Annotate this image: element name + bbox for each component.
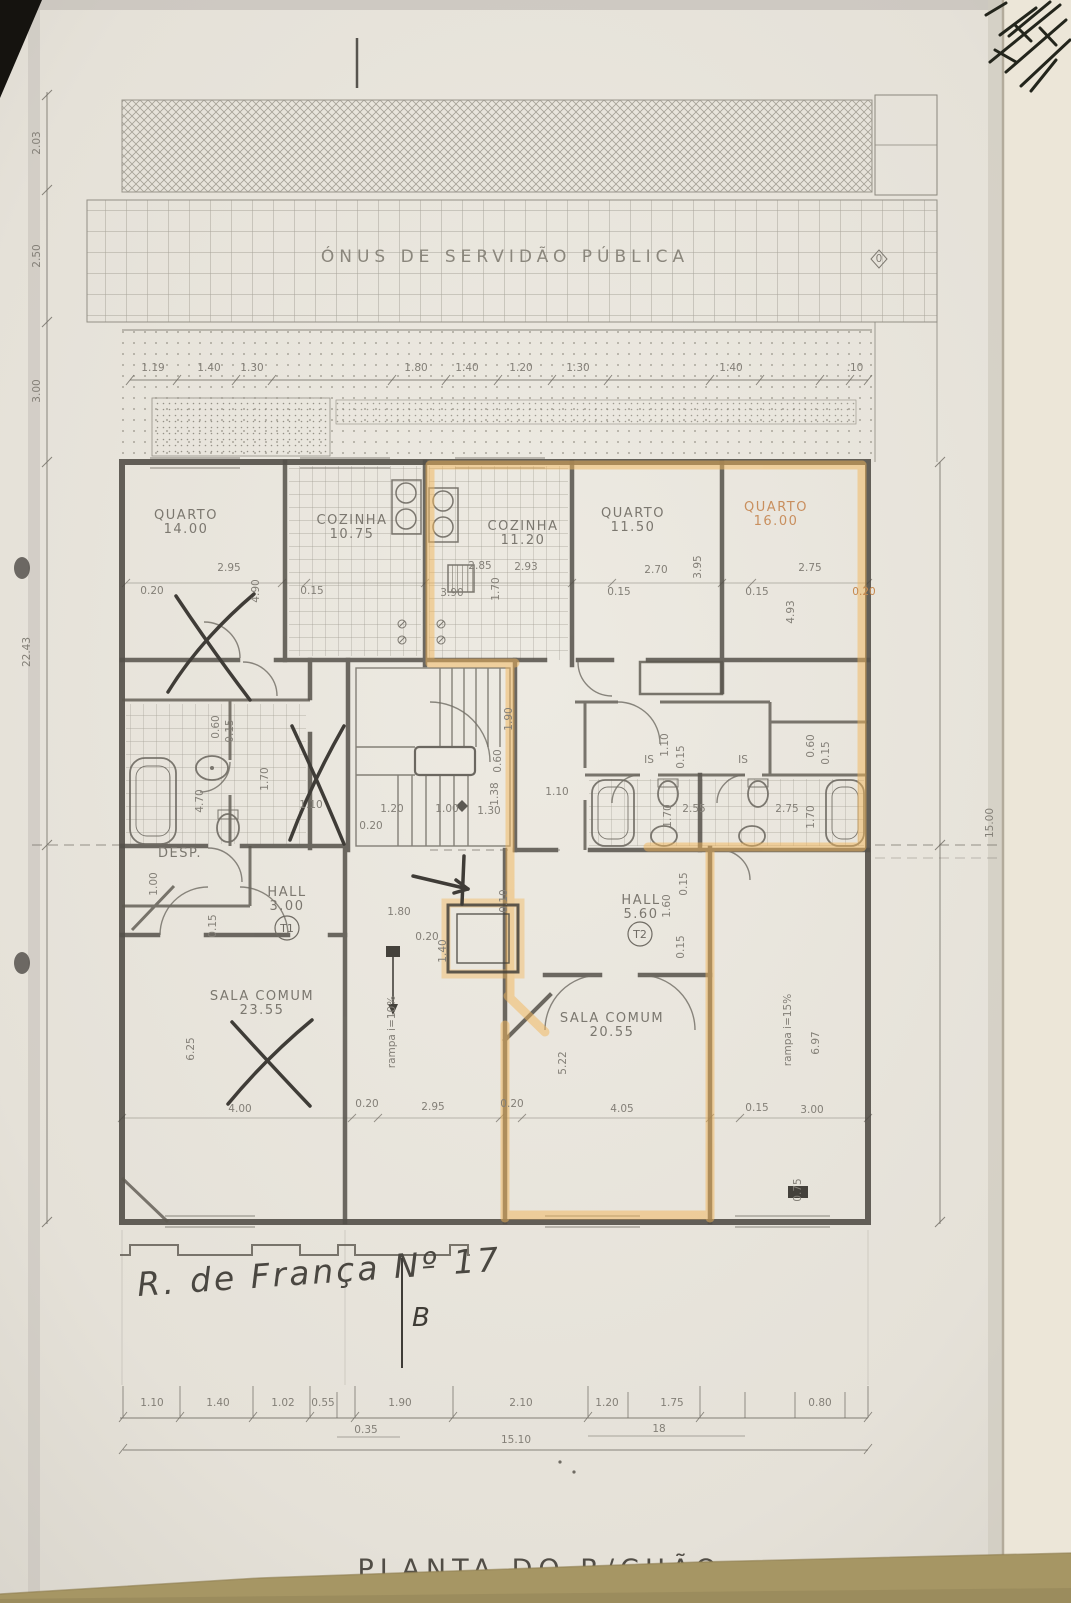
adjacent-sheet bbox=[1003, 0, 1071, 1603]
dimension-label: 1.40 bbox=[197, 362, 220, 374]
dimension-label: 2.55 bbox=[682, 803, 705, 815]
dimension-label: 0.55 bbox=[311, 1397, 334, 1409]
dimension-label: 1.40 bbox=[437, 939, 449, 962]
section-letter: B bbox=[412, 1303, 430, 1333]
dimension-label: 4.93 bbox=[785, 600, 797, 623]
dimension-label: 0.60 bbox=[805, 734, 817, 757]
room-area: 5.60 bbox=[624, 907, 659, 922]
dimension-label: 1.40 bbox=[455, 362, 478, 374]
dimension-label: 1.19 bbox=[141, 362, 164, 374]
dimension-label: 0.15 bbox=[745, 1102, 768, 1114]
dimension-label: 0.15 bbox=[675, 745, 687, 768]
dimension-label: 2.75 bbox=[798, 562, 821, 574]
room-label: QUARTO bbox=[601, 506, 665, 521]
dimension-label: 0 bbox=[876, 253, 883, 265]
dimension-label: 15.00 bbox=[984, 808, 996, 838]
dimension-label: 0.15 bbox=[300, 585, 323, 597]
unit-t1-label: T1 bbox=[279, 922, 294, 935]
dimension-label: 0.20 bbox=[852, 586, 875, 598]
dimension-label: 1.40 bbox=[719, 362, 742, 374]
dimension-label: 1.10 bbox=[659, 733, 671, 756]
dimension-label: 0.80 bbox=[808, 1397, 831, 1409]
dimension-label: 3.90 bbox=[440, 587, 463, 599]
room-label: COZINHA bbox=[317, 513, 388, 528]
dimension-label: 3.95 bbox=[692, 555, 704, 578]
dimension-label: 0.15 bbox=[678, 872, 690, 895]
dimension-label: 1.30 bbox=[240, 362, 263, 374]
dimension-label: 1.75 bbox=[660, 1397, 683, 1409]
dimension-label: 1.70 bbox=[259, 767, 271, 790]
room-label: QUARTO bbox=[154, 508, 218, 523]
dimension-label: 1.20 bbox=[380, 803, 403, 815]
dimension-label: 15.10 bbox=[501, 1434, 531, 1446]
room-label: SALA COMUM bbox=[560, 1011, 664, 1026]
dimension-label: 1.80 bbox=[404, 362, 427, 374]
servitude-strip-label: ÓNUS DE SERVIDÃO PÚBLICA bbox=[321, 245, 689, 267]
dimension-label: 1.00 bbox=[435, 803, 458, 815]
dimension-label: 2.03 bbox=[31, 131, 43, 154]
dimension-label: 5.22 bbox=[557, 1051, 569, 1074]
dimension-label: 0.20 bbox=[500, 1098, 523, 1110]
dimension-label: 1.10 bbox=[140, 1397, 163, 1409]
dimension-label: 1.38 bbox=[489, 782, 501, 805]
photographed-blueprint: ÓNUS DE SERVIDÃO PÚBLICA T1 T2 R. de Fra… bbox=[0, 0, 1071, 1603]
unit-t2-label: T2 bbox=[632, 928, 647, 941]
room-label: IS bbox=[738, 754, 748, 766]
dimension-label: 0.60 bbox=[210, 715, 222, 738]
room-area: 14.00 bbox=[164, 522, 209, 537]
dimension-label: 1.70 bbox=[490, 577, 502, 600]
dimension-label: 0.15 bbox=[607, 586, 630, 598]
dimension-label: 1.80 bbox=[387, 906, 410, 918]
dimension-label: 0.20 bbox=[415, 931, 438, 943]
dimension-label: 1.10 bbox=[545, 786, 568, 798]
dimension-label: 2.85 bbox=[468, 560, 491, 572]
hole-punch-mark bbox=[14, 557, 30, 579]
room-area: 20.55 bbox=[590, 1025, 635, 1040]
dimension-label: 1.70 bbox=[662, 804, 674, 827]
room-label: DESP. bbox=[158, 846, 202, 861]
dimension-label: 1.02 bbox=[271, 1397, 294, 1409]
room-label: HALL bbox=[621, 893, 660, 908]
dimension-label: 3.00 bbox=[31, 379, 43, 402]
dimension-label: 1.40 bbox=[206, 1397, 229, 1409]
room-area: 11.20 bbox=[501, 533, 546, 548]
dimension-label: 0.60 bbox=[492, 749, 504, 772]
dimension-label: 1.90 bbox=[503, 707, 515, 730]
dimension-label: 2.95 bbox=[421, 1101, 444, 1113]
dimension-label: 0.15 bbox=[745, 586, 768, 598]
dimension-label: 1.30 bbox=[566, 362, 589, 374]
dimension-label: 0.20 bbox=[359, 820, 382, 832]
dimension-label: 6.25 bbox=[185, 1037, 197, 1060]
dimension-label: 2.95 bbox=[217, 562, 240, 574]
dimension-label: 0.20 bbox=[355, 1098, 378, 1110]
dimension-label: 0.20 bbox=[140, 585, 163, 597]
dimension-label: 1.00 bbox=[148, 872, 160, 895]
dimension-label: 4.00 bbox=[228, 1103, 251, 1115]
dimension-label: 4.05 bbox=[610, 1103, 633, 1115]
dimension-label: 22.43 bbox=[21, 637, 33, 667]
dimension-label: 6.97 bbox=[810, 1031, 822, 1054]
dimension-label: 0.75 bbox=[792, 1178, 804, 1201]
dimension-label: 0.15 bbox=[675, 935, 687, 958]
dimension-label: 2.10 bbox=[509, 1397, 532, 1409]
room-area: 3.00 bbox=[270, 899, 305, 914]
dimension-label: 4.90 bbox=[250, 579, 262, 602]
dimension-label: 3.00 bbox=[800, 1104, 823, 1116]
room-label: COZINHA bbox=[488, 519, 559, 534]
ramp-label: rampa i=15% bbox=[782, 994, 794, 1066]
dimension-label: 18 bbox=[652, 1423, 665, 1435]
dimension-label: 1.20 bbox=[509, 362, 532, 374]
dimension-label: .10 bbox=[847, 362, 864, 374]
room-label: IS bbox=[644, 754, 654, 766]
dimension-label: 0.35 bbox=[354, 1424, 377, 1436]
room-area: 23.55 bbox=[240, 1003, 285, 1018]
dimension-label: 2.50 bbox=[31, 244, 43, 267]
dimension-label: 0.15 bbox=[207, 914, 219, 937]
hole-punch-mark bbox=[14, 952, 30, 974]
dimension-label: 1.30 bbox=[477, 805, 500, 817]
dimension-label: 1.90 bbox=[388, 1397, 411, 1409]
room-area: 10.75 bbox=[330, 527, 375, 542]
dimension-label: 1.20 bbox=[595, 1397, 618, 1409]
room-area: 16.00 bbox=[754, 514, 799, 529]
dimension-label: 1.60 bbox=[661, 894, 673, 917]
room-label: SALA COMUM bbox=[210, 989, 314, 1004]
dimension-label: 2.75 bbox=[775, 803, 798, 815]
dimension-label: 1.70 bbox=[805, 805, 817, 828]
dimension-label: 0.15 bbox=[820, 741, 832, 764]
dimension-label: 1.10 bbox=[299, 799, 322, 811]
dimension-label: 2.70 bbox=[644, 564, 667, 576]
dimension-label: 0.15 bbox=[224, 719, 236, 742]
room-label: HALL bbox=[267, 885, 306, 900]
room-label: QUARTO bbox=[744, 500, 808, 515]
room-area: 11.50 bbox=[611, 520, 656, 535]
dimension-label: 2.93 bbox=[514, 561, 537, 573]
ramp-label: rampa i=10% bbox=[386, 996, 398, 1068]
dimension-label: 4.70 bbox=[194, 789, 206, 812]
dimension-label: 0.10 bbox=[498, 889, 510, 912]
